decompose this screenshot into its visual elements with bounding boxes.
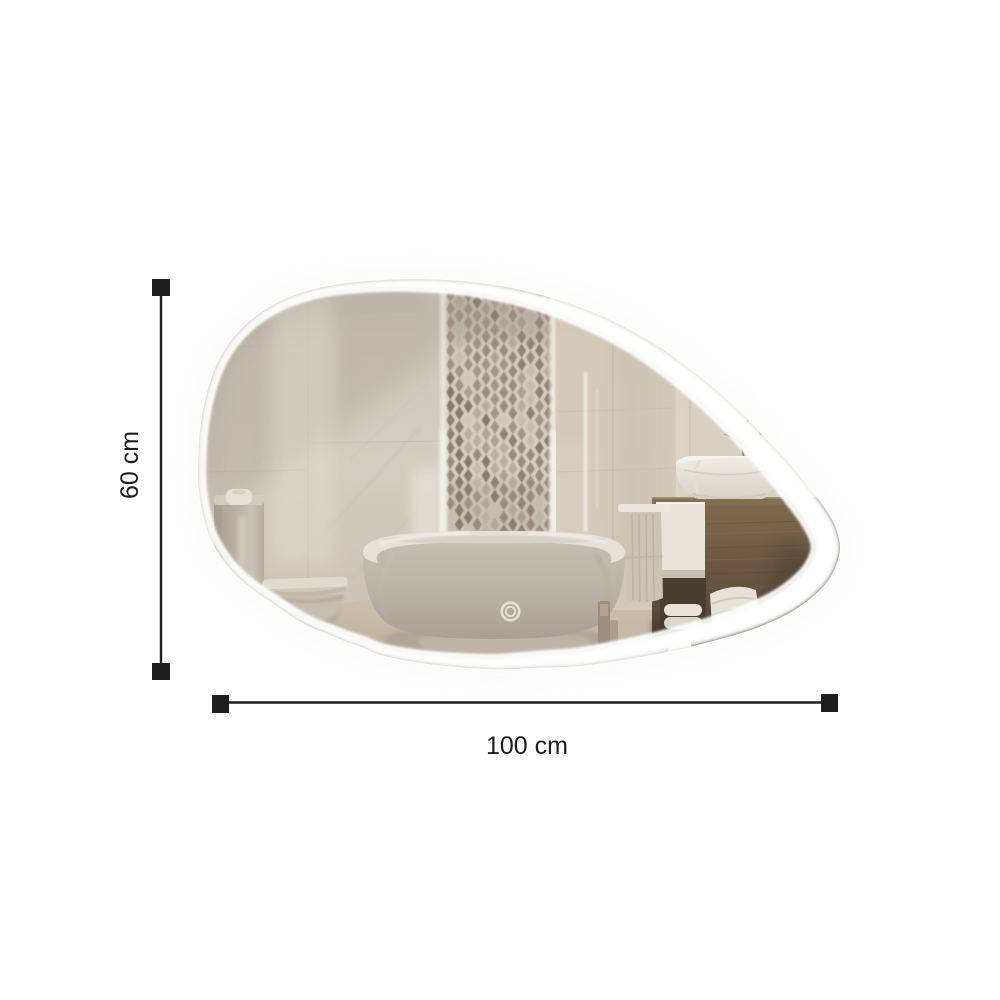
svg-text:100 cm: 100 cm: [486, 732, 568, 760]
svg-text:60 cm: 60 cm: [116, 431, 144, 499]
